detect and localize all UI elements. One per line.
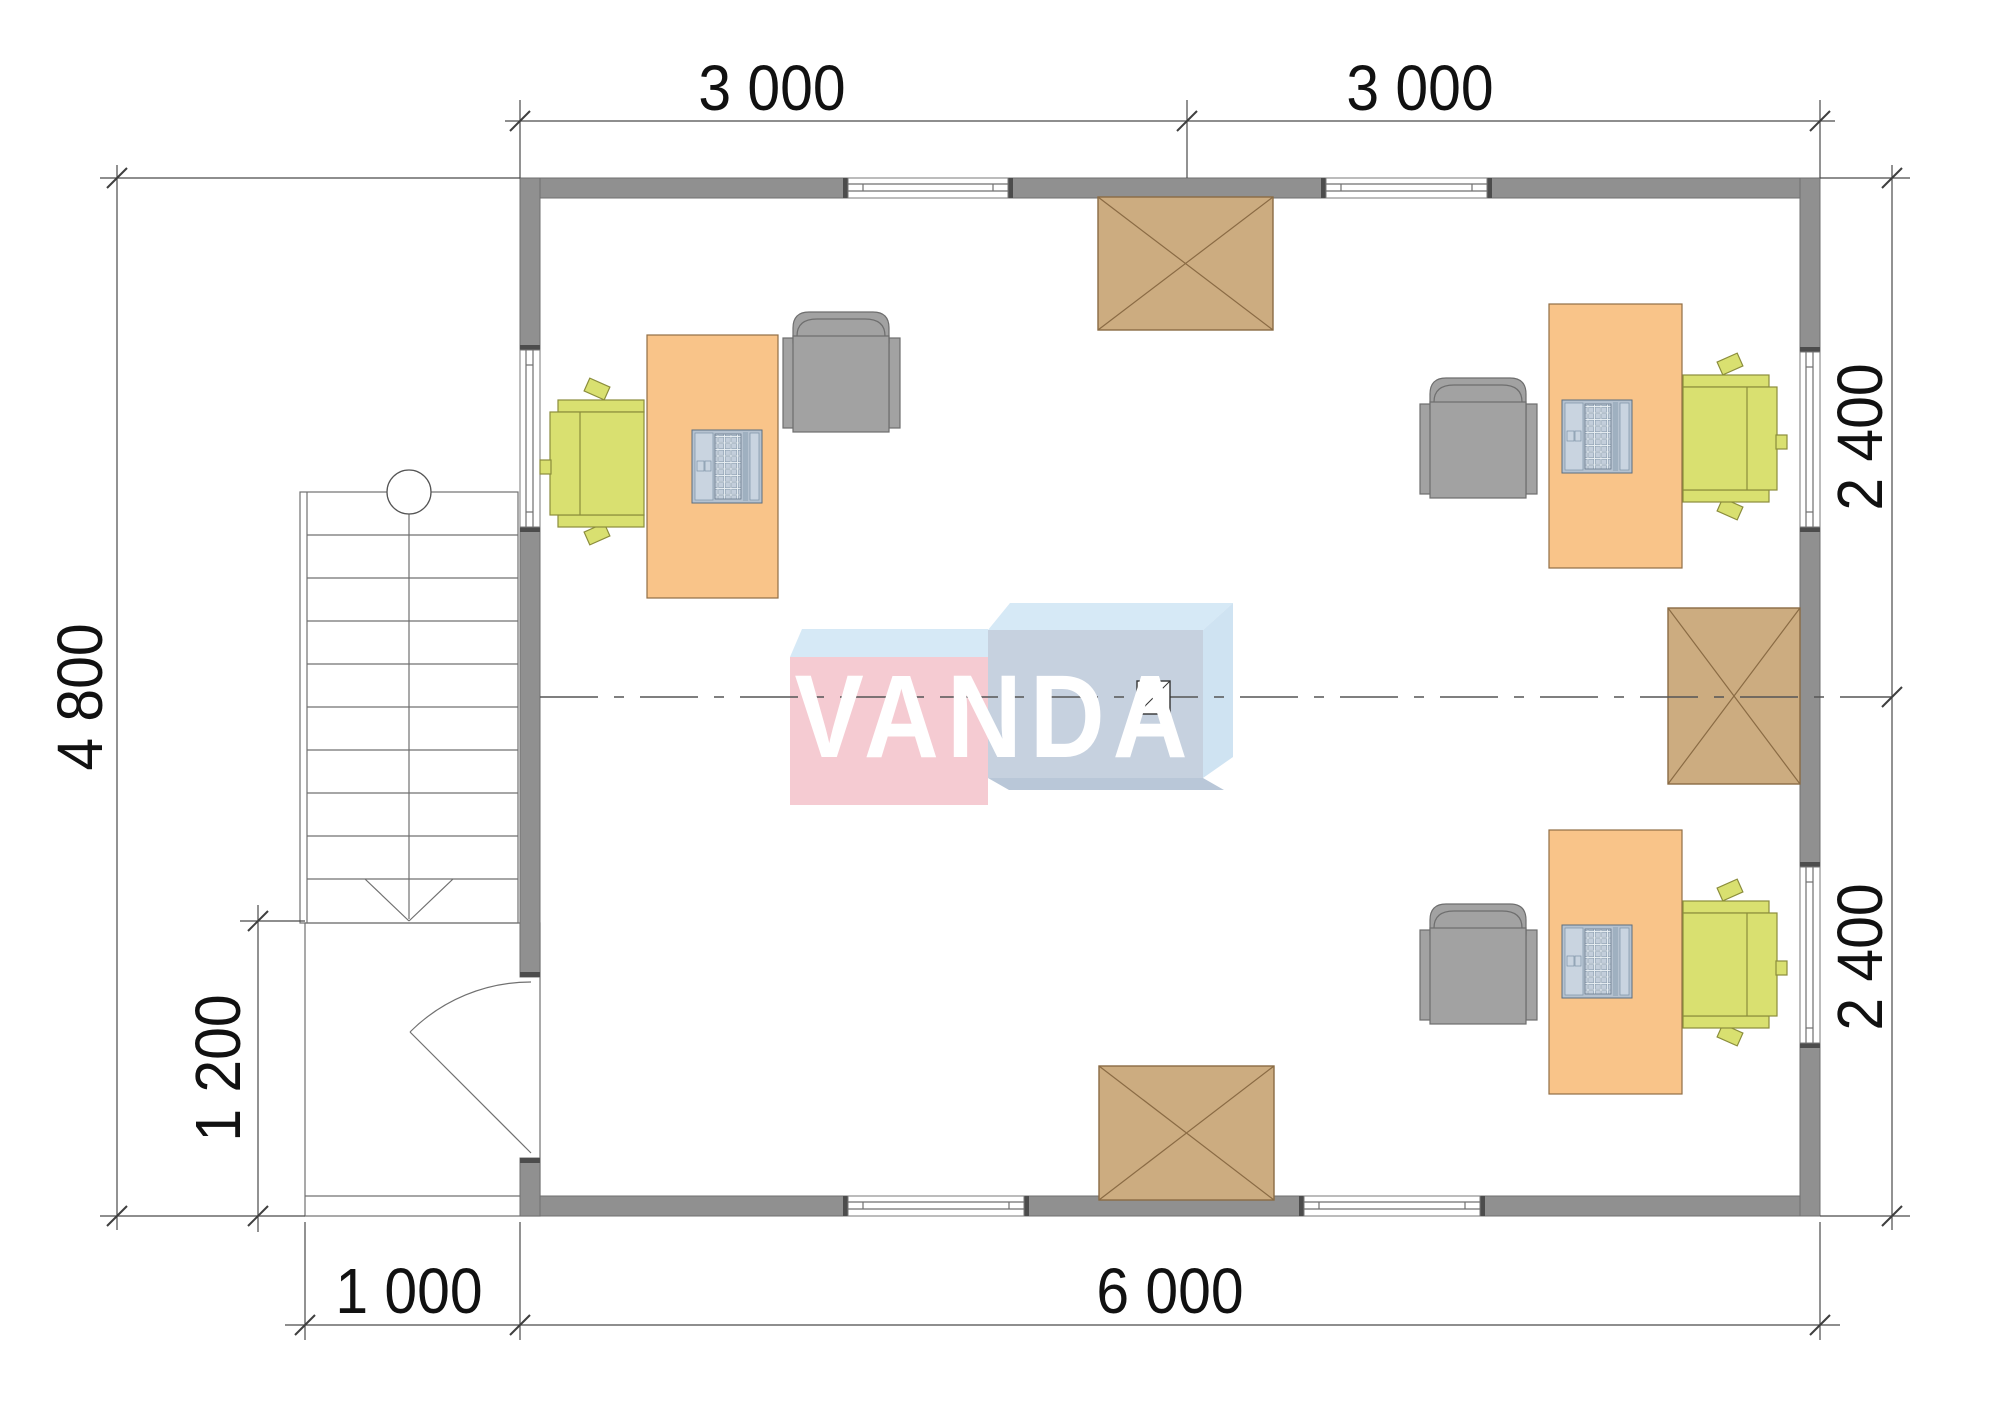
window bbox=[520, 350, 540, 527]
dimension-label-top-right: 3 000 bbox=[1346, 51, 1493, 125]
brand-logo-text: VANDA bbox=[794, 649, 1195, 785]
dimension-label-bottom-porch: 1 000 bbox=[335, 1254, 482, 1328]
crossed-table bbox=[1668, 608, 1800, 784]
dimension-label-top-left: 3 000 bbox=[698, 51, 845, 125]
window bbox=[1304, 1196, 1480, 1216]
window bbox=[1326, 178, 1487, 198]
porch-outline bbox=[305, 923, 540, 1216]
gray-armchair bbox=[1420, 378, 1537, 498]
gray-armchair bbox=[783, 312, 900, 432]
gray-armchair bbox=[1420, 904, 1537, 1024]
workstation bbox=[1420, 304, 1787, 568]
crossed-table bbox=[1099, 1066, 1274, 1200]
staircase bbox=[300, 470, 518, 923]
window bbox=[848, 178, 1008, 198]
green-office-chair bbox=[1683, 353, 1787, 520]
dimension-label-bottom-main: 6 000 bbox=[1096, 1254, 1243, 1328]
floor-plan: 3 000 3 000 4 800 1 200 2 400 2 400 1 00… bbox=[0, 0, 2000, 1410]
door-swing-icon bbox=[410, 982, 531, 1153]
crossed-table bbox=[1098, 197, 1273, 330]
dimension-label-porch-height: 1 200 bbox=[181, 994, 255, 1141]
dimension-label-left: 4 800 bbox=[43, 623, 117, 770]
dimension-label-right-lower: 2 400 bbox=[1823, 883, 1897, 1030]
workstation bbox=[1420, 830, 1787, 1094]
green-office-chair bbox=[540, 378, 644, 545]
window bbox=[1800, 352, 1820, 527]
window bbox=[848, 1196, 1024, 1216]
window bbox=[1800, 867, 1820, 1043]
workstation bbox=[540, 312, 900, 598]
dimension-label-right-upper: 2 400 bbox=[1823, 363, 1897, 510]
green-office-chair bbox=[1683, 879, 1787, 1046]
stairs-circle-marker bbox=[387, 470, 431, 514]
